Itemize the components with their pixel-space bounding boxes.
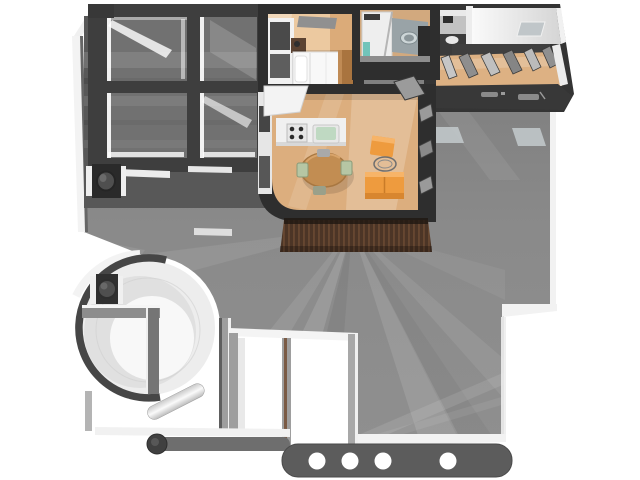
footer-dot <box>342 453 359 470</box>
bathroom <box>352 4 440 80</box>
bed-headboard-edge <box>338 50 342 88</box>
lower-room-a-shade <box>238 338 245 430</box>
stove-burner <box>290 135 295 140</box>
shower-fixture <box>364 14 380 20</box>
vent-panel <box>90 276 96 304</box>
deck-bottom-shade <box>280 246 432 252</box>
mullion-highlight <box>107 93 111 158</box>
bottom-wall-bar <box>148 437 290 451</box>
dining-chair <box>313 186 326 195</box>
base-band <box>282 444 512 477</box>
inner-wall-vertical <box>148 308 159 394</box>
footer-dot <box>309 453 326 470</box>
bathroom-cabinet <box>418 26 430 58</box>
stove-burner <box>299 135 304 140</box>
living-room <box>258 76 436 222</box>
roof-band-face <box>424 84 572 110</box>
kitchen-sink <box>313 125 339 143</box>
toilet-cistern <box>443 16 453 23</box>
glass-pane <box>200 17 257 81</box>
stove-burner <box>290 127 295 132</box>
skylight-room-ceiling <box>472 8 561 44</box>
vent-knob-highlight <box>101 283 108 290</box>
shower-plant <box>363 42 370 56</box>
mullion-highlight <box>181 19 185 79</box>
vent-knob-upper <box>86 164 126 198</box>
window-panel <box>259 156 270 188</box>
wardrobe-panel <box>270 54 290 78</box>
roof-right-edge <box>550 106 556 306</box>
mullion-highlight <box>200 17 204 81</box>
ceiling-skylight <box>517 22 545 36</box>
footer-dot <box>375 453 392 470</box>
vent-knob-highlight <box>100 174 107 182</box>
toilet-room-wall <box>436 10 468 16</box>
roof-band <box>424 84 572 110</box>
mullion-highlight <box>203 152 255 157</box>
door-streak <box>188 166 232 173</box>
bedroom-rug <box>297 16 337 29</box>
top-right-section <box>424 4 574 112</box>
wardrobe-panel <box>270 22 290 50</box>
mullion-highlight <box>200 93 204 158</box>
roof-vent-tick <box>501 92 505 95</box>
sink-bowl <box>316 127 336 140</box>
grid-frame-top <box>88 4 274 17</box>
mullion-highlight <box>108 152 184 157</box>
door-streak <box>194 228 232 236</box>
nightstand-lamp <box>294 41 300 47</box>
bed-pillow <box>295 56 307 82</box>
vent-panel <box>86 166 92 196</box>
terrace-deck <box>280 218 432 252</box>
roof-vent <box>481 92 498 97</box>
glass-pane <box>107 93 187 158</box>
vent-knob-lower <box>90 274 123 304</box>
sofa-top-edge <box>365 172 404 177</box>
room-divider-bar <box>229 333 238 431</box>
room-divider-highlight <box>355 334 358 452</box>
mullion-highlight <box>107 17 111 81</box>
bathroom-ledge <box>360 56 430 62</box>
roof-vent <box>518 94 539 100</box>
vent-knob <box>97 172 115 191</box>
stove-burner <box>299 127 304 132</box>
footer-dot <box>440 453 457 470</box>
left-thin-wall <box>85 391 92 431</box>
toilet-bowl <box>446 36 459 44</box>
skylight-grid <box>84 4 274 236</box>
apartment-3d-floorplan <box>0 0 640 480</box>
corner-knob-highlight <box>151 438 159 446</box>
mullion-highlight <box>107 17 187 20</box>
bedroom <box>258 4 364 94</box>
stove-top <box>287 124 307 142</box>
sofa <box>365 172 404 199</box>
top-corner-block <box>88 4 114 18</box>
sofa-back <box>365 193 404 199</box>
hallway <box>436 44 568 86</box>
shower <box>362 12 392 60</box>
floorplan-render-stage <box>0 0 640 480</box>
bedroom-wardrobe <box>268 18 294 88</box>
stove <box>287 124 307 142</box>
vent-knob <box>98 280 116 298</box>
grid-frame-middle <box>88 81 274 93</box>
dining-chair <box>341 161 352 175</box>
lower-room-b <box>291 341 348 449</box>
bathroom-bottom-wall <box>352 62 440 76</box>
side-wall-shade <box>219 318 222 430</box>
armchair <box>370 136 395 158</box>
skylight-room <box>472 8 566 44</box>
roof-notch-side <box>501 317 506 438</box>
sink-drain <box>404 35 414 42</box>
dining-chair <box>297 163 308 177</box>
deck-top-edge <box>284 218 428 224</box>
dining-chair <box>317 149 330 157</box>
